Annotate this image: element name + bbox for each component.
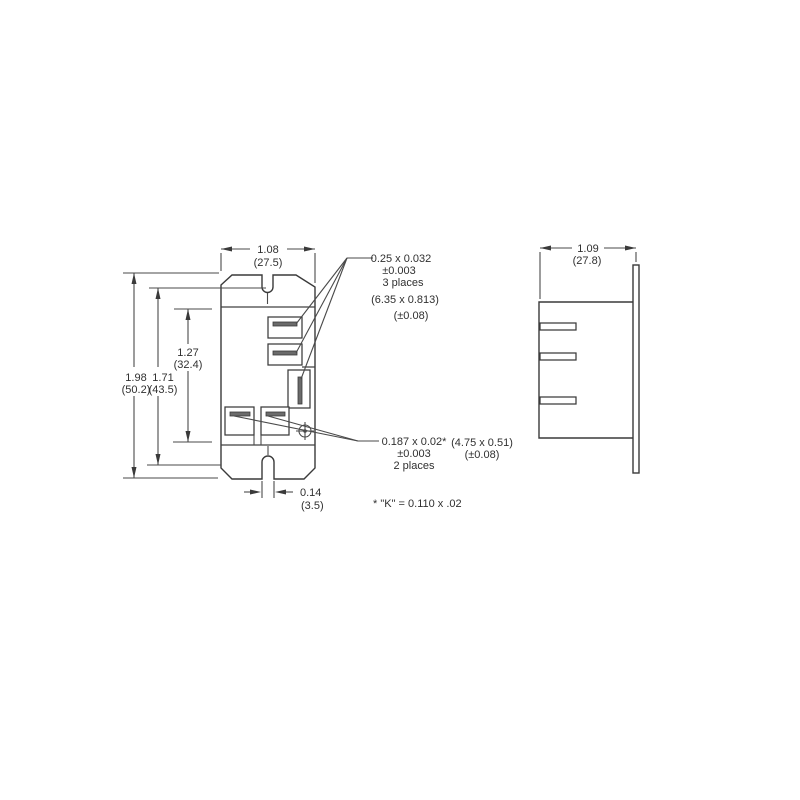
arrowhead-left	[540, 246, 551, 251]
callout-metric-tolerance: (±0.08)	[394, 310, 429, 322]
callout-metric-size: (4.75 x 0.51)	[451, 437, 513, 449]
dim-label-in: 0.14	[300, 487, 321, 499]
callout-large-blades: 0.25 x 0.032 ±0.003 3 places (6.35 x 0.8…	[296, 253, 439, 379]
arrowhead-up	[186, 309, 191, 320]
arrowhead-right	[625, 246, 636, 251]
dim-body-height: 1.71 (43.5)	[147, 288, 266, 465]
callout-metric-size: (6.35 x 0.813)	[371, 294, 439, 306]
callout-small-blades: 0.187 x 0.02* ±0.003 2 places (4.75 x 0.…	[234, 416, 513, 472]
arrowhead-right	[250, 490, 261, 495]
arrowhead-down	[132, 467, 137, 478]
callout-size: 0.187 x 0.02*	[382, 436, 448, 448]
terminal-housing-vertical	[288, 370, 310, 408]
side-view	[539, 265, 639, 473]
terminal-housing-upper-2	[268, 344, 302, 365]
arrowhead-left	[275, 490, 286, 495]
dim-label-mm: (27.5)	[254, 257, 283, 269]
blade-strip	[230, 412, 250, 416]
dim-terminal-span: 1.27 (32.4)	[173, 309, 212, 442]
arrowhead-down	[156, 454, 161, 465]
arrowhead-up	[156, 288, 161, 299]
footnote-k-definition: * "K" = 0.110 x .02	[373, 498, 462, 510]
blade-strip	[266, 412, 285, 416]
technical-drawing-canvas: 1.08 (27.5) 1.98 (50.2) 1.71 (43.5) 1.27…	[0, 0, 800, 800]
blade-strip-vertical	[298, 377, 302, 404]
arrowhead-left	[221, 247, 232, 252]
side-blade-slot-1	[540, 323, 576, 330]
dim-label-mm: (3.5)	[301, 500, 324, 512]
dim-notch-width: 0.14 (3.5)	[244, 481, 324, 512]
dim-label-mm: (27.8)	[573, 255, 602, 267]
leader-line	[301, 258, 347, 379]
leader-line	[296, 258, 347, 324]
arrowhead-right	[304, 247, 315, 252]
side-blade-slot-2	[540, 353, 576, 360]
dim-label-mm: (50.2)	[122, 384, 151, 396]
dimension-drawing-page: 1.08 (27.5) 1.98 (50.2) 1.71 (43.5) 1.27…	[0, 0, 800, 800]
front-view	[221, 275, 315, 479]
dim-label-in: 1.71	[152, 372, 173, 384]
arrowhead-down	[186, 431, 191, 442]
dim-label-in: 1.08	[257, 244, 278, 256]
terminal-housing-upper-1	[268, 317, 302, 338]
dim-label-in: 1.27	[177, 347, 198, 359]
blade-strip	[273, 351, 297, 355]
arrowhead-up	[132, 273, 137, 284]
callout-tolerance: ±0.003	[382, 265, 416, 277]
blade-strip	[273, 322, 297, 326]
housing-rect	[268, 317, 302, 338]
side-mounting-flange	[633, 265, 639, 473]
callout-metric-tolerance: (±0.08)	[465, 449, 500, 461]
callout-places: 2 places	[394, 460, 435, 472]
dim-front-width: 1.08 (27.5)	[221, 244, 315, 283]
dim-side-width: 1.09 (27.8)	[540, 243, 636, 299]
dim-label-in: 1.98	[125, 372, 146, 384]
dim-label-mm: (32.4)	[174, 359, 203, 371]
callout-size: 0.25 x 0.032	[371, 253, 432, 265]
dim-label-in: 1.09	[577, 243, 598, 255]
dim-label-mm: (43.5)	[149, 384, 178, 396]
housing-rect	[225, 407, 254, 435]
callout-places: 3 places	[383, 277, 424, 289]
callout-tolerance: ±0.003	[397, 448, 431, 460]
leader-line	[296, 258, 347, 353]
side-blade-slot-3	[540, 397, 576, 404]
terminal-housing-lower-1	[225, 407, 254, 435]
